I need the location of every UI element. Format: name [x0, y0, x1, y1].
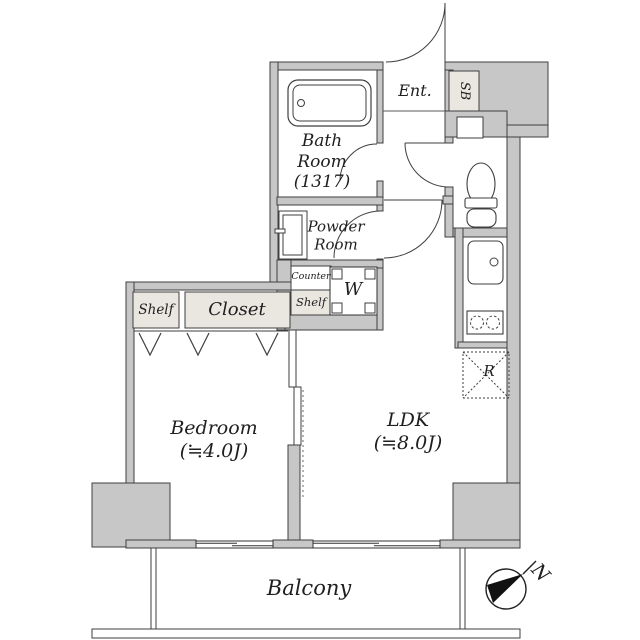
- windows: [196, 541, 440, 548]
- toilet-icon: [465, 163, 497, 227]
- washbasin-icon: [275, 211, 307, 259]
- laundry-shelf-label: Shelf: [296, 295, 326, 309]
- stove-icon: [467, 311, 503, 334]
- kitchen-sink-icon: [468, 241, 503, 284]
- folding-door-icon: [134, 331, 288, 355]
- counter-label: Counter: [291, 271, 330, 283]
- refrigerator-label: R: [483, 362, 494, 380]
- bathtub-icon: [288, 80, 371, 126]
- floor-plan: Bath Room (1317) Ent. SB Powder Room Cou…: [0, 0, 640, 640]
- wall-niche: [457, 117, 483, 138]
- compass-icon: [486, 561, 536, 609]
- toilet-door-arc-icon: [405, 143, 449, 187]
- powder-room-label: Powder Room: [307, 218, 364, 255]
- bathroom-label: Bath Room (1317): [294, 131, 351, 193]
- closet-label: Closet: [208, 299, 266, 321]
- entrance-label: Ent.: [398, 81, 432, 101]
- ldk-door-arc-icon: [384, 200, 442, 258]
- washer-label: W: [344, 279, 363, 301]
- shelf-label: Shelf: [138, 302, 173, 318]
- bedroom-label: Bedroom (≒4.0J): [170, 417, 257, 463]
- ldk-window-icon: [313, 541, 440, 548]
- bedroom-window-icon: [196, 541, 273, 548]
- floor-plan-graphics: [0, 0, 640, 640]
- entrance-door-arc-icon: [386, 3, 445, 62]
- shoe-box-label: SB: [456, 82, 472, 100]
- balcony-label: Balcony: [267, 576, 351, 602]
- ldk-label: LDK (≒8.0J): [374, 409, 443, 455]
